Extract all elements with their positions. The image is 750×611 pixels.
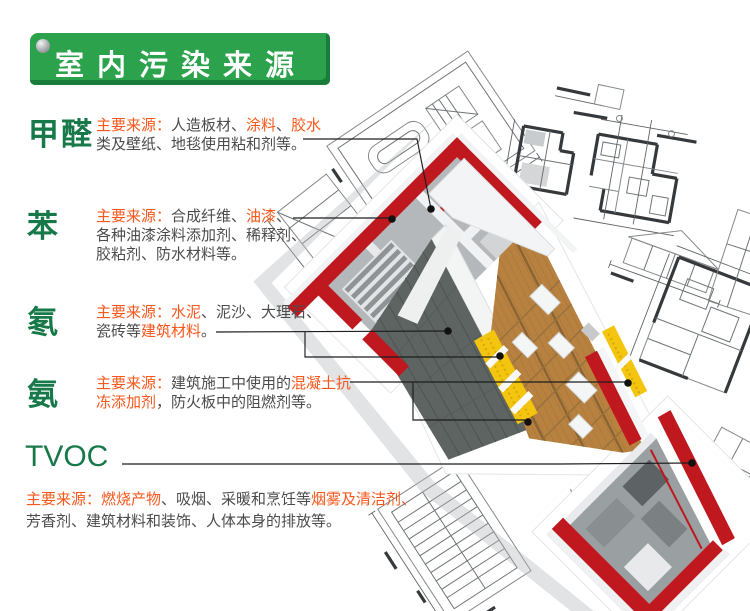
blueprint-ladder-drawing: [363, 458, 536, 611]
desc-line: 瓷砖等建筑材料。: [96, 322, 321, 341]
pollutant-desc-formaldehyde: 主要来源：人造板材、涂料、胶水 类及壁纸、地毯使用粘和剂等。: [96, 116, 321, 154]
pollutant-desc-tvoc: 主要来源：燃烧产物、吸烟、采暖和烹饪等烟雾及清洁剂、 芳香剂、建筑材料和装饰、人…: [26, 489, 506, 533]
desc-line: 主要来源：建筑施工中使用的混凝土抗: [96, 374, 351, 393]
desc-line: 主要来源：合成纤维、油漆、: [96, 207, 306, 226]
header-title: 室内污染来源: [55, 42, 307, 84]
infographic-canvas: 室内污染来源 甲醛 主要来源：人造板材、涂料、胶水 类及壁纸、地毯使用粘和剂等。…: [0, 0, 750, 611]
pin-icon: [36, 39, 50, 53]
blueprint-side-sliver: [708, 210, 750, 315]
desc-line: 类及壁纸、地毯使用粘和剂等。: [96, 135, 321, 154]
desc-line: 芳香剂、建筑材料和装饰、人体本身的排放等。: [26, 511, 506, 533]
desc-line: 冻添加剂，防火板中的阻燃剂等。: [96, 393, 351, 412]
pollutant-desc-ammonia: 主要来源：建筑施工中使用的混凝土抗 冻添加剂，防火板中的阻燃剂等。: [96, 374, 351, 412]
desc-line: 胶粘剂、防水材料等。: [96, 245, 306, 264]
pollutant-label-benzene: 苯: [27, 201, 60, 246]
leader-dot-radon-1: [444, 327, 452, 335]
desc-line: 主要来源：人造板材、涂料、胶水: [96, 116, 321, 135]
leader-dot-formaldehyde: [427, 205, 435, 213]
leader-dot-ammonia-1: [624, 379, 632, 387]
leader-dot-ammonia-2: [524, 418, 532, 426]
desc-line: 各种油漆涂料添加剂、稀释剂、: [96, 226, 306, 245]
blueprint-dimension-bars: [555, 76, 624, 109]
pollutant-label-formaldehyde: 甲醛: [28, 109, 94, 154]
blueprint-floor-plan-right: [630, 244, 750, 395]
leader-dot-tvoc: [688, 459, 696, 467]
desc-line: 主要来源：燃烧产物、吸烟、采暖和烹饪等烟雾及清洁剂、: [26, 489, 506, 511]
house-model: [232, 96, 750, 611]
pollutant-desc-radon: 主要来源：水泥、泥沙、大理石、 瓷砖等建筑材料。: [96, 303, 321, 341]
desc-line: 主要来源：水泥、泥沙、大理石、: [96, 303, 321, 322]
pollutant-label-tvoc: TVOC: [25, 440, 108, 474]
header-banner: 室内污染来源: [30, 33, 330, 85]
pollutant-label-radon: 氡: [27, 297, 60, 342]
leader-dot-benzene: [388, 215, 396, 223]
pollutant-desc-benzene: 主要来源：合成纤维、油漆、 各种油漆涂料添加剂、稀释剂、 胶粘剂、防水材料等。: [96, 207, 306, 264]
pollutant-label-ammonia: 氨: [27, 369, 60, 414]
leader-dot-radon-2: [496, 352, 504, 360]
